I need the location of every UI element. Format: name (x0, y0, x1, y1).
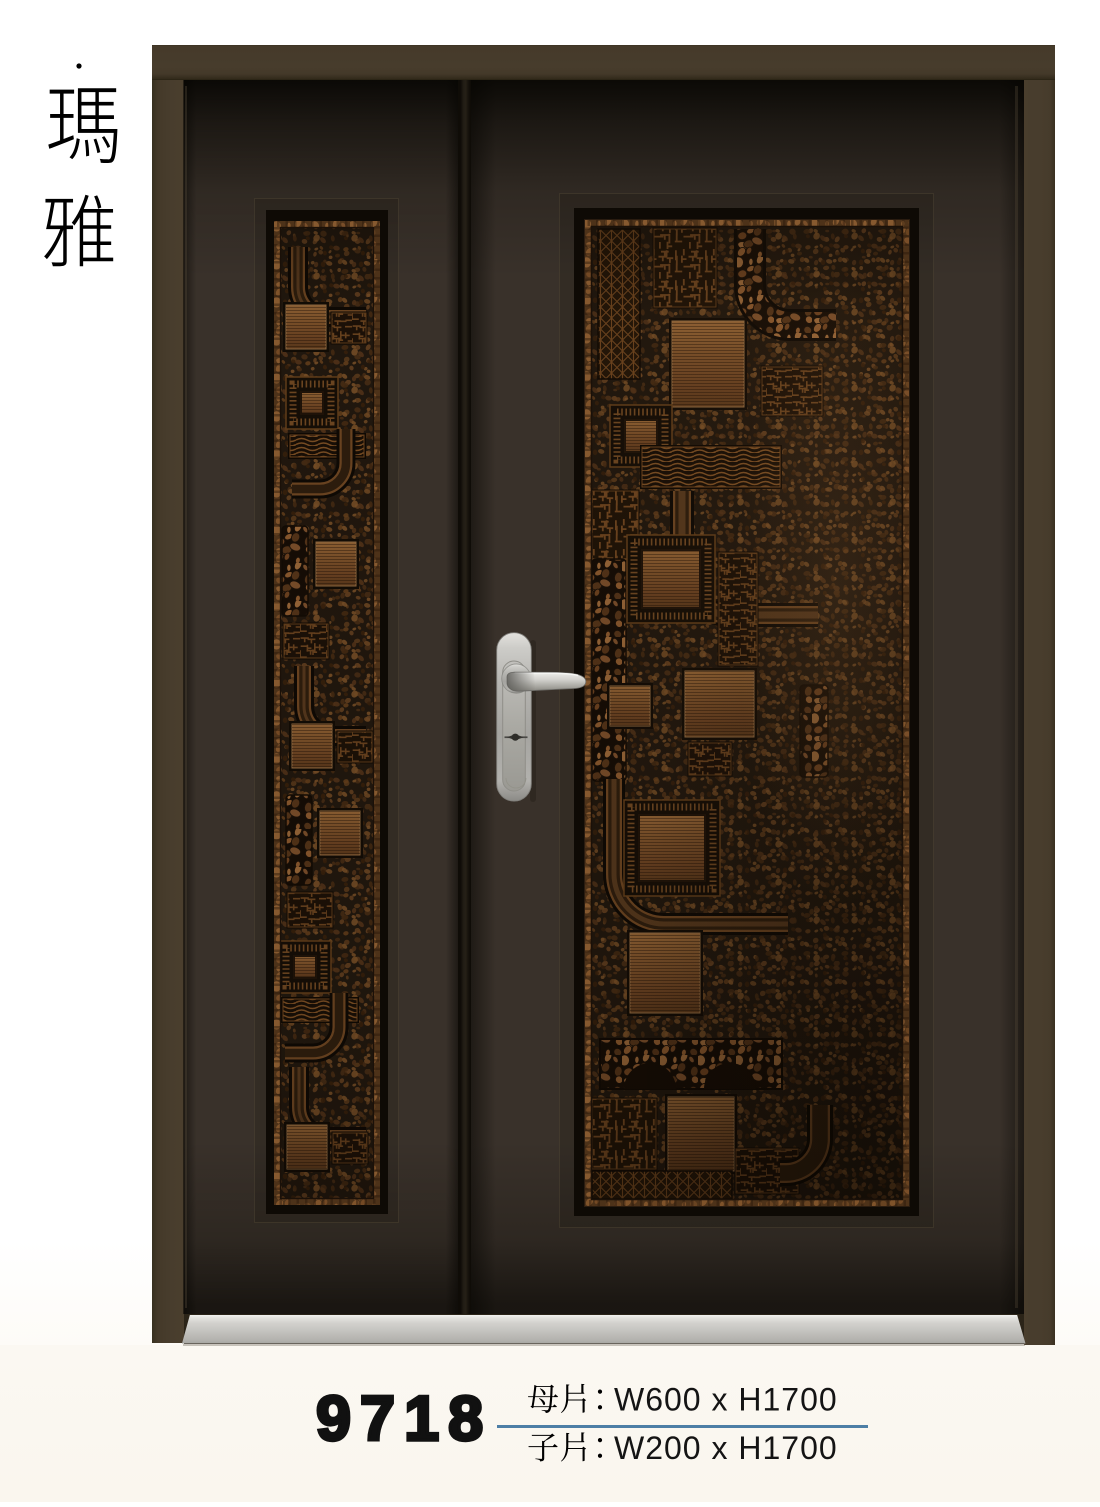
svg-text:9718: 9718 (316, 1384, 492, 1454)
svg-text:W600 x H1700: W600 x H1700 (614, 1382, 838, 1418)
svg-text:W200 x H1700: W200 x H1700 (614, 1430, 838, 1466)
